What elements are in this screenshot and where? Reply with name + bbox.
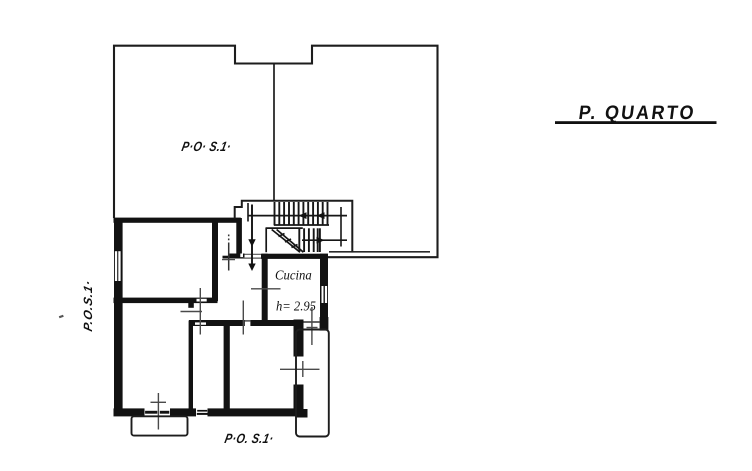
svg-text:Cucina: Cucina <box>275 267 312 283</box>
svg-text:P.O.S.1·: P.O.S.1· <box>81 278 95 332</box>
svg-text:P. QUARTO: P. QUARTO <box>577 101 697 123</box>
svg-text:h= 2.95: h= 2.95 <box>276 298 316 314</box>
svg-text:P·O· S.1·: P·O· S.1· <box>180 139 232 154</box>
svg-text:P·O. S.1·: P·O. S.1· <box>223 431 275 446</box>
